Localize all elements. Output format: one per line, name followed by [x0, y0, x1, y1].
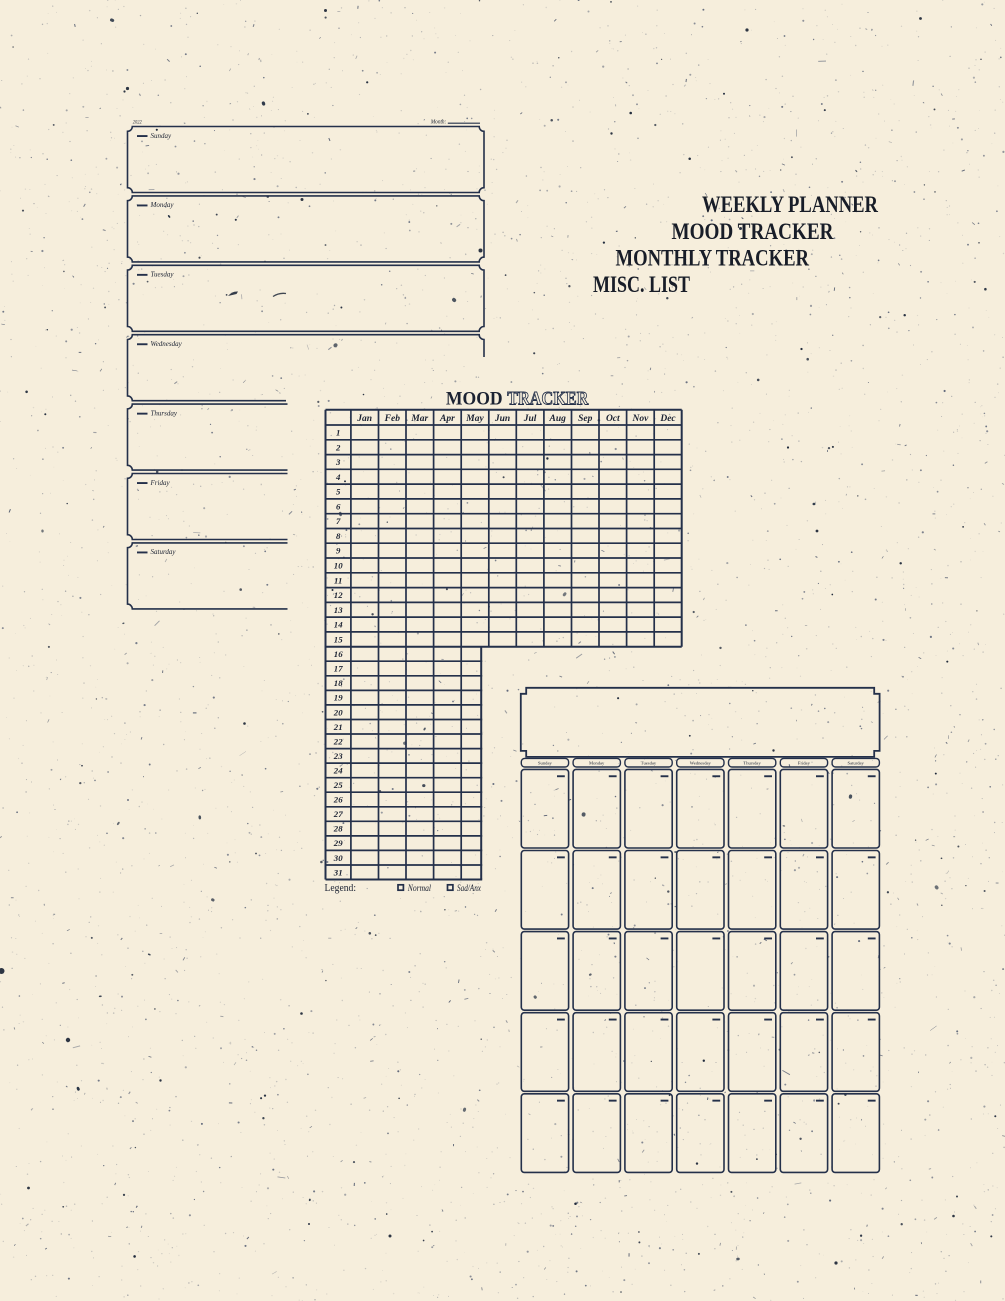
svg-text:Tuesday: Tuesday: [151, 271, 175, 279]
svg-text:Monday: Monday: [589, 761, 605, 766]
svg-text:Oct: Oct: [606, 414, 620, 424]
svg-text:11: 11: [334, 575, 342, 585]
svg-text:WEEKLY PLANNER: WEEKLY PLANNER: [702, 192, 878, 217]
svg-text:Friday: Friday: [798, 761, 811, 766]
svg-text:Legend:: Legend:: [325, 882, 357, 894]
svg-text:Normal: Normal: [407, 884, 431, 894]
svg-text:Sad/Anx: Sad/Anx: [457, 884, 482, 894]
svg-text:15: 15: [334, 634, 343, 644]
svg-text:MONTHLY TRACKER: MONTHLY TRACKER: [616, 245, 810, 270]
svg-text:Thursday: Thursday: [743, 761, 761, 766]
svg-text:Nov: Nov: [631, 414, 649, 424]
svg-text:7: 7: [336, 516, 341, 526]
svg-text:29: 29: [333, 838, 343, 848]
svg-text:Mar: Mar: [410, 414, 428, 424]
svg-text:Sunday: Sunday: [151, 132, 173, 140]
svg-text:19: 19: [334, 693, 343, 703]
svg-text:Month:: Month:: [430, 118, 446, 125]
svg-text:Saturday: Saturday: [151, 548, 177, 556]
svg-text:22: 22: [333, 736, 343, 746]
svg-text:28: 28: [333, 824, 343, 834]
svg-text:Dec: Dec: [659, 414, 676, 424]
svg-text:17: 17: [334, 664, 343, 674]
svg-text:31: 31: [333, 867, 343, 877]
svg-text:Thursday: Thursday: [151, 409, 178, 417]
svg-text:MOOD TRACKER: MOOD TRACKER: [672, 219, 834, 244]
svg-text:Wednesday: Wednesday: [690, 761, 712, 766]
svg-text:6: 6: [336, 501, 341, 511]
svg-text:Jun: Jun: [494, 414, 510, 424]
svg-text:16: 16: [334, 649, 343, 659]
svg-text:Monday: Monday: [150, 201, 175, 209]
svg-text:Tuesday: Tuesday: [641, 761, 657, 766]
svg-text:20: 20: [333, 707, 343, 717]
svg-text:Jan: Jan: [356, 414, 372, 424]
svg-text:MISC. LIST: MISC. LIST: [593, 272, 690, 297]
svg-text:5: 5: [336, 487, 341, 497]
svg-text:Sunday: Sunday: [538, 761, 552, 766]
svg-text:8: 8: [336, 531, 341, 541]
svg-text:24: 24: [333, 766, 343, 776]
svg-text:12: 12: [334, 590, 343, 600]
svg-text:Apr: Apr: [439, 414, 455, 424]
svg-text:Saturday: Saturday: [848, 761, 865, 766]
svg-text:21: 21: [333, 722, 343, 732]
svg-text:Friday: Friday: [150, 479, 171, 487]
svg-text:10: 10: [334, 561, 343, 571]
svg-text:Feb: Feb: [384, 414, 401, 424]
svg-text:13: 13: [334, 605, 343, 615]
svg-text:TRACKER: TRACKER: [507, 389, 589, 409]
svg-text:Aug: Aug: [549, 414, 567, 424]
svg-text:MOOD: MOOD: [446, 389, 503, 409]
svg-text:4: 4: [335, 472, 341, 482]
svg-text:9: 9: [336, 546, 341, 556]
svg-text:27: 27: [333, 809, 343, 819]
svg-text:2022: 2022: [133, 119, 142, 125]
svg-text:26: 26: [333, 795, 343, 805]
svg-text:14: 14: [334, 620, 343, 630]
svg-text:25: 25: [333, 780, 343, 790]
svg-text:2: 2: [335, 442, 341, 452]
svg-text:3: 3: [335, 457, 341, 467]
svg-text:18: 18: [334, 678, 343, 688]
svg-text:23: 23: [333, 751, 343, 761]
svg-text:Wednesday: Wednesday: [151, 340, 183, 348]
svg-text:1: 1: [336, 428, 340, 438]
svg-text:Sep: Sep: [578, 414, 593, 424]
svg-text:Jul: Jul: [523, 414, 537, 424]
svg-text:May: May: [465, 414, 484, 424]
svg-text:30: 30: [333, 853, 343, 863]
